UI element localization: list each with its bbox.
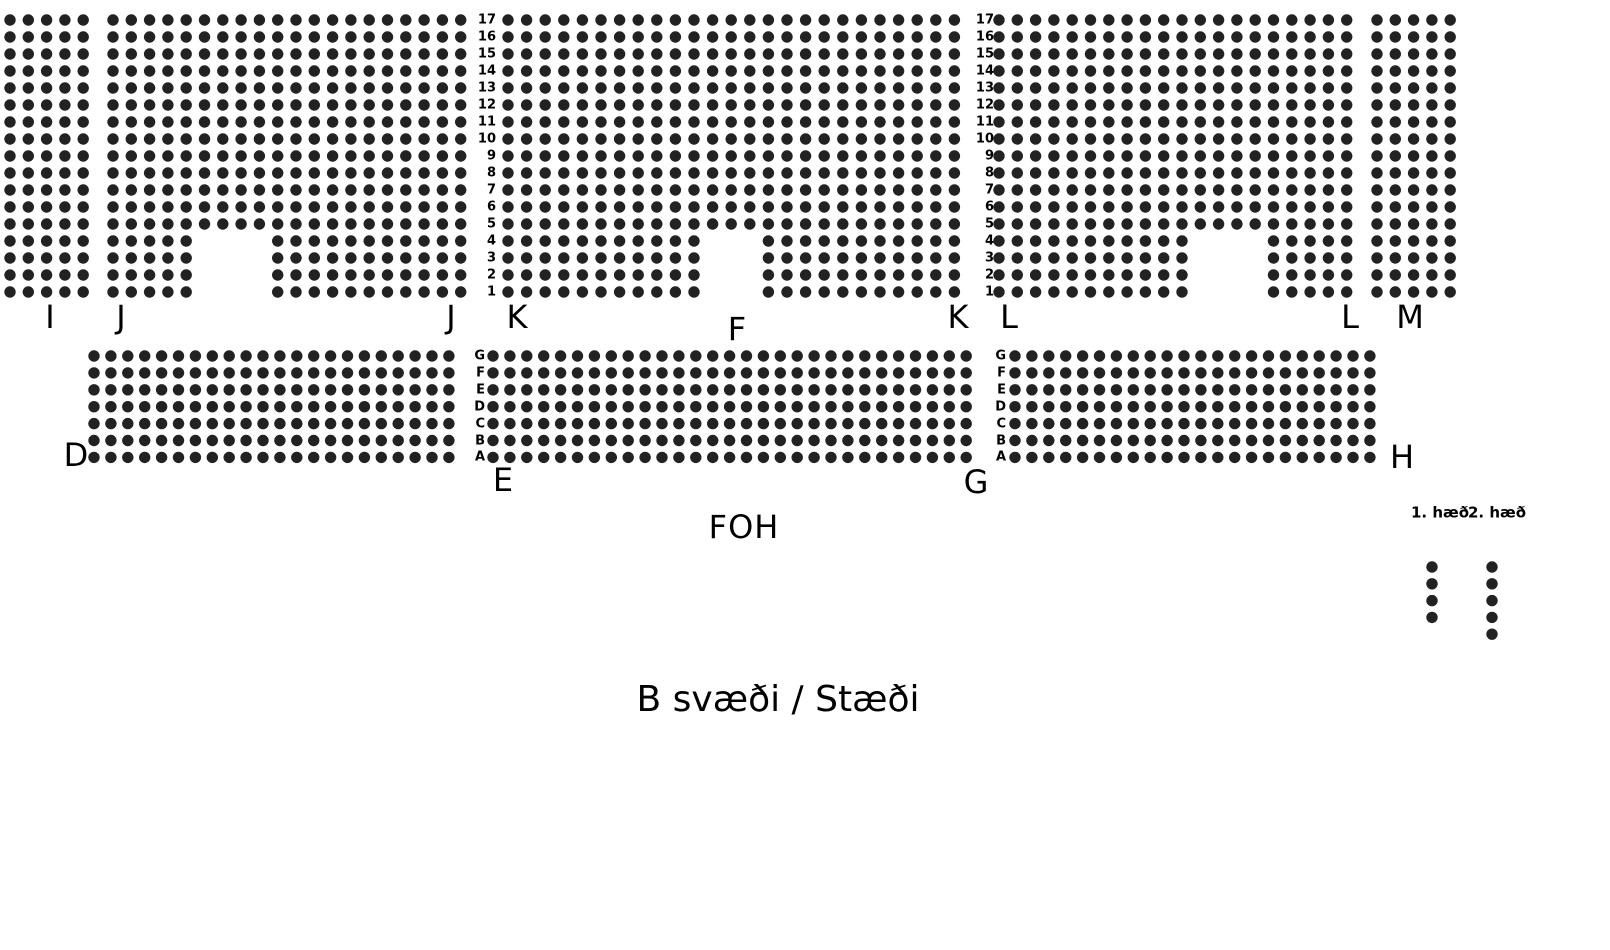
row-letter-label: E [476,383,485,396]
row-number-label: 14 [478,65,496,78]
row-number-label: 15 [478,48,496,61]
row-letter-label: E [997,383,1006,396]
row-number-label: 7 [487,184,496,197]
row-letter-label: G [995,350,1006,363]
row-number-label: 13 [976,82,994,95]
row-letter-label: D [474,400,485,413]
row-number-label: 17 [976,14,994,27]
section-label-L: L [1341,301,1359,333]
row-letter-label: F [997,366,1006,379]
section-label-G: G [964,466,989,498]
row-number-label: 3 [487,252,496,265]
row-number-label: 17 [478,14,496,27]
row-number-label: 4 [487,235,496,248]
section-label-J: J [116,301,125,333]
row-number-label: 4 [985,235,994,248]
section-label-K: K [948,301,969,333]
row-number-label: 10 [478,133,496,146]
row-number-label: 14 [976,65,994,78]
row-number-label: 2 [487,269,496,282]
row-number-label: 1 [487,286,496,299]
row-number-label: 11 [478,116,496,129]
row-number-label: 7 [985,184,994,197]
row-number-label: 12 [478,99,496,112]
row-number-label: 8 [985,167,994,180]
row-letter-label: F [476,366,485,379]
row-number-label: 6 [985,201,994,214]
section-label-H: H [1390,441,1414,473]
section-label-K: K [507,301,528,333]
row-letter-label: B [475,434,485,447]
row-number-label: 5 [487,218,496,231]
section-label-L: L [1000,301,1018,333]
row-number-label: 12 [976,99,994,112]
row-letter-label: D [995,400,1006,413]
section-label-E: E [493,464,513,496]
row-number-label: 8 [487,167,496,180]
section-label-M: M [1396,301,1424,333]
page-title: B svæði / Stæði [637,682,920,718]
row-number-label: 5 [985,218,994,231]
row-number-label: 15 [976,48,994,61]
seating-chart: 1716151413121110987654321171615141312111… [0,0,1610,950]
row-letter-label: B [996,434,1006,447]
section-label-D: D [64,439,89,471]
row-number-label: 1 [985,286,994,299]
row-letter-label: C [996,417,1006,430]
row-number-label: 11 [976,116,994,129]
section-label-I: I [45,301,54,333]
row-number-label: 6 [487,201,496,214]
row-number-label: 16 [478,31,496,44]
row-letter-label: A [475,451,485,464]
section-label-J: J [446,301,455,333]
row-number-label: 10 [976,133,994,146]
section-label-F: F [728,313,746,345]
row-letter-label: G [474,350,485,363]
row-number-label: 13 [478,82,496,95]
row-number-label: 2 [985,269,994,282]
row-letter-label: A [996,451,1006,464]
row-number-label: 9 [487,150,496,163]
foh-label: FOH [709,511,780,543]
legend-floor2-label: 2. hæð [1468,506,1526,521]
row-number-label: 3 [985,252,994,265]
labels-layer: 1716151413121110987654321171615141312111… [0,0,1610,950]
row-letter-label: C [475,417,485,430]
row-number-label: 9 [985,150,994,163]
row-number-label: 16 [976,31,994,44]
legend-floor1-label: 1. hæð [1411,506,1469,521]
